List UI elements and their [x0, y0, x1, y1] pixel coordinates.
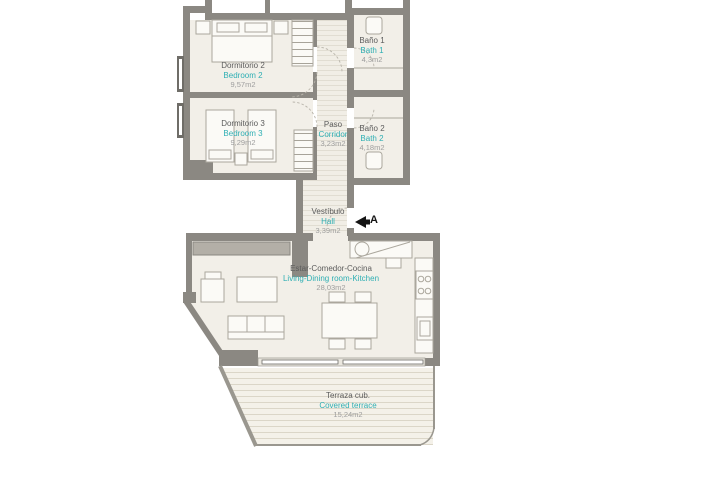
dining-chair-4-symbol [355, 339, 371, 349]
room-area: 4,3m2 [312, 55, 432, 65]
room-name-en: Bath 1 [312, 46, 432, 56]
sliding-door-2 [343, 360, 423, 364]
wall-between-baths [347, 90, 403, 97]
room-area: 3,23m2 [273, 139, 393, 149]
wall-top-stub-mid [265, 0, 270, 13]
room-label-bedroom-2: Dormitorio 2 Bedroom 2 9,57m2 [183, 61, 303, 90]
wall-hall-right-upper [347, 185, 354, 208]
dining-chair-3-symbol [329, 339, 345, 349]
nightstand-bedroom-3-symbol [235, 153, 247, 165]
wall-bedrooms-bottom [183, 173, 317, 180]
dining-chair-1-symbol [329, 292, 345, 302]
cooktop-symbol [416, 271, 433, 299]
room-name-es: Dormitorio 2 [183, 61, 303, 71]
room-area: 15,24m2 [263, 410, 433, 420]
wall-living-right [433, 233, 440, 366]
sliding-door-1 [262, 360, 338, 364]
room-label-terrace: Terraza cub. Covered terrace 15,24m2 [263, 391, 433, 420]
wall-bath-bottom [347, 178, 410, 185]
room-area: 28,03m2 [246, 283, 416, 293]
wall-bath-top [350, 8, 410, 15]
sink-symbol [355, 242, 369, 256]
room-area: 9,57m2 [183, 80, 303, 90]
wardrobe-bedroom-2-symbol [292, 20, 313, 66]
nightstand-right-symbol [274, 21, 288, 34]
armchair-symbol [201, 279, 224, 302]
room-label-living: Estar-Comedor-Cocina Living-Dining room-… [246, 264, 416, 293]
room-name-en: Living-Dining room-Kitchen [246, 274, 416, 284]
room-name-es: Estar-Comedor-Cocina [246, 264, 416, 274]
wall-living-bottom-left [219, 350, 258, 366]
room-label-bath-1: Baño 1 Bath 1 4,3m2 [312, 36, 432, 65]
wall-bath-left-b [347, 68, 354, 108]
wall-between-bedrooms [183, 92, 317, 98]
entrance-label: A [370, 214, 378, 226]
dining-chair-2-symbol [355, 292, 371, 302]
room-area: 3,39m2 [268, 226, 388, 236]
wall-living-left [186, 241, 192, 292]
room-label-corridor: Paso Corridor 3,23m2 [273, 120, 393, 149]
floor-plan-page: Dormitorio 2 Bedroom 2 9,57m2 Dormitorio… [0, 0, 726, 485]
wall-living-bottom-right [425, 358, 440, 366]
toilet-bath-2-symbol [366, 152, 382, 169]
room-name-en: Corridor [273, 130, 393, 140]
room-name-en: Bedroom 2 [183, 71, 303, 81]
dining-table-symbol [322, 303, 377, 338]
room-name-en: Covered terrace [263, 401, 433, 411]
room-name-es: Terraza cub. [263, 391, 433, 401]
sideboard-symbol [193, 242, 290, 255]
wall-top-stub-left [205, 0, 212, 13]
wall-top [205, 13, 350, 20]
room-name-es: Baño 1 [312, 36, 432, 46]
room-name-es: Paso [273, 120, 393, 130]
nightstand-left-symbol [196, 21, 210, 34]
sofa-symbol [228, 316, 284, 339]
terrace-windows [258, 358, 425, 366]
wall-bath-right [403, 0, 410, 185]
toilet-bath-1-symbol [366, 17, 382, 34]
